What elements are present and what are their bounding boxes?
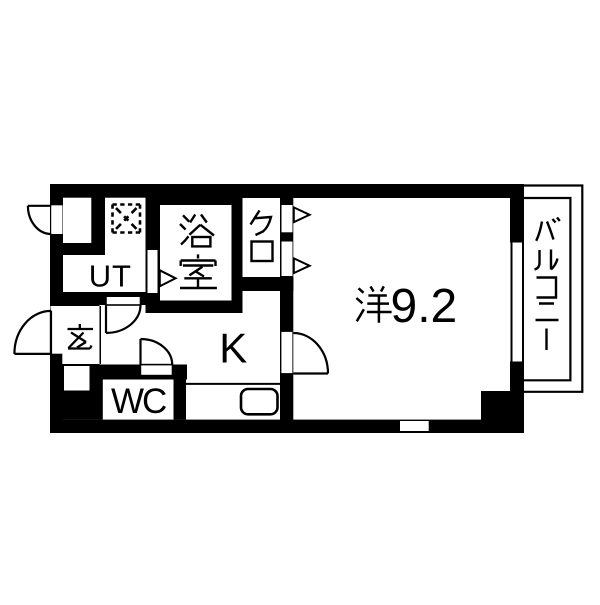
svg-text:WC: WC (111, 382, 166, 421)
svg-text:UT: UT (89, 259, 132, 294)
svg-text:9.2: 9.2 (391, 280, 458, 333)
svg-text:K: K (219, 325, 247, 372)
